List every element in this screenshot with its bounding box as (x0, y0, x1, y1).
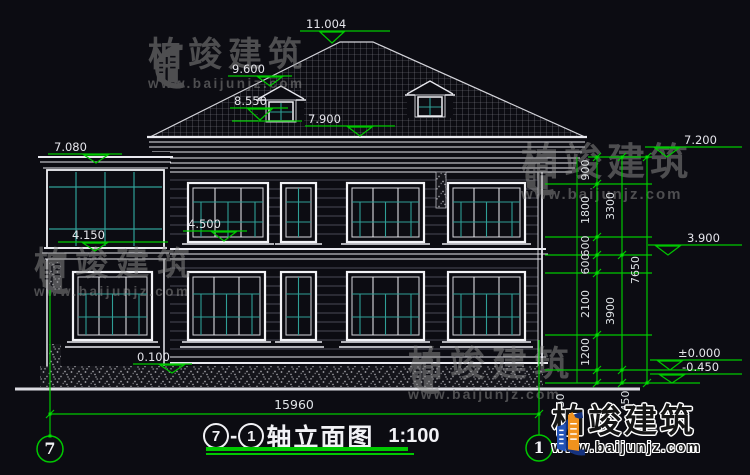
dim-label: 600 (579, 236, 592, 257)
dim-label: 7650 (629, 256, 642, 284)
title-axis-start: 7 (203, 423, 229, 449)
chain-dimension-labels: 900 1800 600 600 2100 1200 450 3300 3900… (274, 160, 642, 415)
level-label: -0.450 (682, 360, 719, 374)
dim-label: 1200 (579, 338, 592, 366)
level-label: 7.900 (308, 112, 341, 126)
level-label: 11.004 (306, 17, 346, 31)
title-underline-thick (206, 447, 408, 451)
level-4150-marker (58, 242, 168, 251)
cad-elevation-drawing: 柏竣建筑 www.baijunjz.com 柏竣建筑 www.baijunjz.… (0, 0, 750, 475)
axis-digit-left: 7 (44, 439, 55, 458)
brand-logo: 柏竣建筑 www.baijunjz.com (546, 404, 701, 456)
axis-digit-right: 1 (533, 438, 544, 457)
level-label: 9.600 (232, 62, 265, 76)
level-8550-marker (230, 108, 302, 121)
level-label: 3.900 (687, 231, 720, 245)
level-7200-marker (645, 147, 742, 157)
dim-label: 900 (579, 160, 592, 181)
level-labels: 11.004 9.600 8.550 7.900 7.080 4.500 4.1… (54, 17, 721, 374)
title-underline-thin (206, 453, 414, 455)
level-label: 4.150 (72, 228, 105, 242)
level-7080-marker (48, 154, 122, 163)
title-axis-end: 1 (238, 423, 264, 449)
title-scale: 1:100 (388, 425, 439, 448)
level-label: 8.550 (234, 94, 267, 108)
level-9600-marker (228, 76, 292, 86)
level-11004-marker (300, 31, 390, 43)
dim-label: 3900 (604, 297, 617, 325)
dim-label: 600 (579, 254, 592, 275)
level-neg450-marker (650, 374, 742, 383)
level-label: ±0.000 (678, 346, 721, 360)
title-separator: - (230, 423, 237, 449)
level-4500-marker (183, 231, 247, 241)
dim-label: 2100 (579, 290, 592, 318)
level-label: 4.500 (188, 217, 221, 231)
level-0100-marker (133, 364, 192, 373)
level-7900-marker (305, 126, 395, 136)
dim-label: 3300 (604, 192, 617, 220)
level-3900-marker (648, 245, 742, 255)
dim-label: 1800 (579, 196, 592, 224)
level-label: 7.200 (684, 133, 717, 147)
level-label: 0.100 (137, 350, 170, 364)
level-label: 7.080 (54, 140, 87, 154)
bottom-width-label: 15960 (274, 397, 314, 412)
